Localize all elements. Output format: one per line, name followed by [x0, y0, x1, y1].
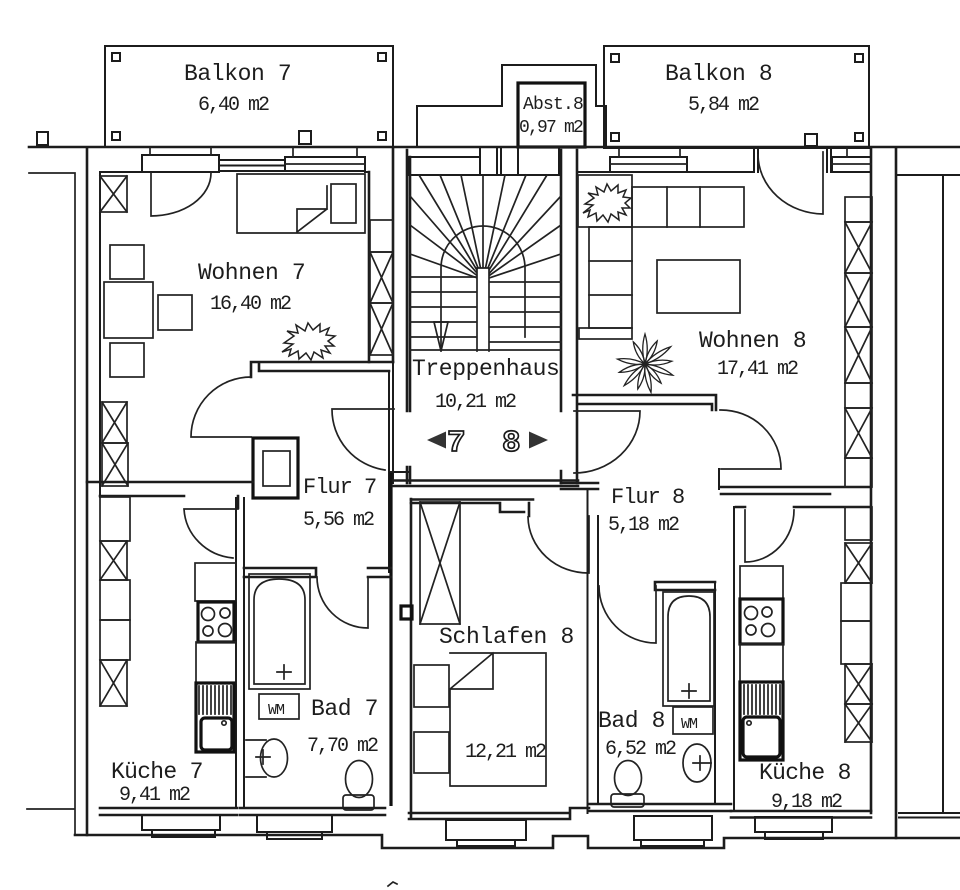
svg-text:Schlafen 8: Schlafen 8: [439, 624, 574, 650]
svg-text:0,97 m2: 0,97 m2: [519, 118, 583, 138]
svg-text:16,40 m2: 16,40 m2: [210, 293, 291, 316]
svg-text:Bad 8: Bad 8: [598, 708, 665, 734]
svg-text:7: 7: [447, 426, 466, 461]
svg-text:WM: WM: [681, 716, 698, 733]
svg-text:6,40 m2: 6,40 m2: [198, 94, 269, 117]
svg-text:Bad 7: Bad 7: [311, 696, 378, 722]
svg-text:17,41 m2: 17,41 m2: [717, 358, 798, 381]
svg-text:8: 8: [502, 426, 521, 461]
svg-text:Balkon 7: Balkon 7: [184, 61, 291, 87]
svg-text:Balkon 8: Balkon 8: [665, 61, 772, 87]
svg-text:6,52 m2: 6,52 m2: [605, 738, 676, 761]
svg-text:12,21 m2: 12,21 m2: [465, 741, 546, 764]
svg-text:Treppenhaus: Treppenhaus: [412, 356, 559, 382]
svg-text:Küche 7: Küche 7: [111, 759, 203, 785]
svg-text:5,18 m2: 5,18 m2: [608, 514, 679, 537]
svg-text:10,21 m2: 10,21 m2: [435, 391, 516, 414]
svg-text:Küche 8: Küche 8: [759, 760, 851, 786]
svg-text:7,70 m2: 7,70 m2: [307, 735, 378, 758]
svg-text:Wohnen 7: Wohnen 7: [198, 260, 305, 286]
svg-text:5,56 m2: 5,56 m2: [303, 509, 374, 532]
svg-text:WM: WM: [268, 702, 285, 719]
svg-text:9,41 m2: 9,41 m2: [119, 784, 190, 807]
svg-text:Flur 8: Flur 8: [611, 485, 684, 510]
svg-text:5,84 m2: 5,84 m2: [688, 94, 759, 117]
svg-text:Wohnen 8: Wohnen 8: [699, 328, 806, 354]
svg-text:Abst.8: Abst.8: [523, 95, 583, 115]
svg-text:Flur 7: Flur 7: [303, 475, 376, 500]
